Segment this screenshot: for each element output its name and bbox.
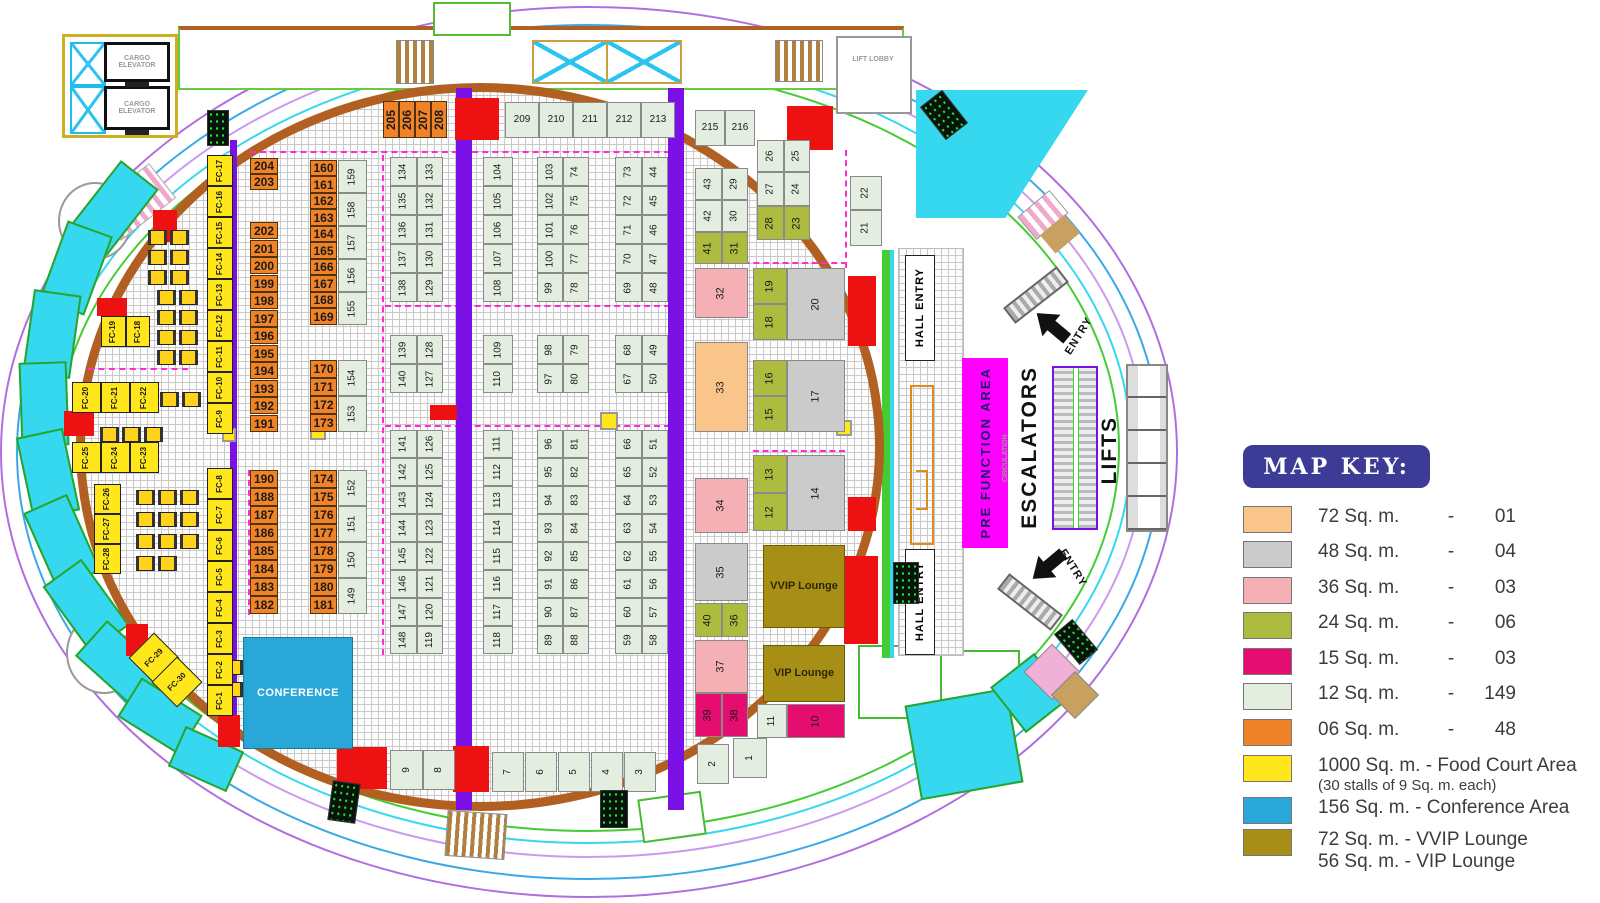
booth-153[interactable]: 153 [338,396,367,432]
booth-41[interactable]: 41 [695,232,722,264]
booth-fc-3[interactable]: FC-3 [207,623,233,654]
booth-label: FC-18 [134,320,142,342]
booth-133[interactable]: 133 [417,157,443,186]
booth-61[interactable]: 61 [615,570,642,598]
booth-166[interactable]: 166 [310,259,337,275]
cargo-elevator-2[interactable]: CARGO ELEVATOR [104,86,170,130]
booth-111[interactable]: 111 [483,430,513,458]
booth-143[interactable]: 143 [390,486,417,514]
booth-48[interactable]: 48 [642,273,668,302]
booth-fc-1[interactable]: FC-1 [207,685,233,716]
booth-23[interactable]: 23 [784,206,810,240]
booth-150[interactable]: 150 [338,542,367,578]
booth-14[interactable]: 14 [787,455,845,531]
booth-53[interactable]: 53 [642,486,668,514]
booth-fc-23[interactable]: FC-23 [130,442,159,473]
booth-85[interactable]: 85 [563,542,589,570]
legend-swatch [1243,719,1292,746]
booth-27[interactable]: 27 [757,172,784,206]
booth-164[interactable]: 164 [310,226,337,242]
booth-label: 51 [650,438,660,449]
booth-fc-27[interactable]: FC-27 [94,514,121,544]
zone-divider-line [385,425,670,427]
booth-fc-16[interactable]: FC-16 [207,186,233,217]
digital-signage [600,790,628,828]
booth-177[interactable]: 177 [310,524,337,542]
booth-1[interactable]: 1 [733,738,767,778]
booth-label: 30 [730,210,740,221]
booth-63[interactable]: 63 [615,514,642,542]
booth-label: 191 [254,418,274,430]
booth-fc-11[interactable]: FC-11 [207,341,233,372]
booth-193[interactable]: 193 [250,380,278,397]
booth-68[interactable]: 68 [615,335,642,364]
booth-131[interactable]: 131 [417,215,443,244]
booth-106[interactable]: 106 [483,215,513,244]
booth-90[interactable]: 90 [537,598,563,626]
booth-fc-15[interactable]: FC-15 [207,217,233,248]
booth-label: 71 [624,224,634,235]
booth-52[interactable]: 52 [642,458,668,486]
booth-label: 61 [624,578,634,589]
booth-124[interactable]: 124 [417,486,443,514]
booth-71[interactable]: 71 [615,215,642,244]
booth-65[interactable]: 65 [615,458,642,486]
booth-54[interactable]: 54 [642,514,668,542]
booth-fc-2[interactable]: FC-2 [207,654,233,685]
booth-208[interactable]: 208 [431,101,447,138]
booth-fc-20[interactable]: FC-20 [72,382,101,413]
booth-43[interactable]: 43 [695,168,722,200]
booth-15[interactable]: 15 [753,396,787,432]
booth-74[interactable]: 74 [563,157,589,186]
booth-142[interactable]: 142 [390,458,417,486]
booth-13[interactable]: 13 [753,455,787,493]
booth-154[interactable]: 154 [338,360,367,396]
booth-158[interactable]: 158 [338,193,367,226]
booth-58[interactable]: 58 [642,626,668,654]
booth-123[interactable]: 123 [417,514,443,542]
booth-label: 159 [348,168,358,185]
booth-213[interactable]: 213 [641,102,675,138]
booth-196[interactable]: 196 [250,327,278,344]
booth-label: 9 [402,767,412,773]
food-court-table [148,270,167,285]
booth-70[interactable]: 70 [615,244,642,273]
booth-91[interactable]: 91 [537,570,563,598]
booth-116[interactable]: 116 [483,570,513,598]
booth-label: 205 [385,109,397,129]
booth-64[interactable]: 64 [615,486,642,514]
booth-46[interactable]: 46 [642,215,668,244]
booth-180[interactable]: 180 [310,578,337,596]
booth-label: 112 [493,464,503,480]
booth-30[interactable]: 30 [722,200,748,232]
booth-134[interactable]: 134 [390,157,417,186]
booth-60[interactable]: 60 [615,598,642,626]
booth-205[interactable]: 205 [383,101,399,138]
booth-38[interactable]: 38 [722,693,748,737]
booth-label: 156 [348,267,358,284]
booth-label: 95 [545,466,555,477]
booth-label: 174 [313,473,333,485]
booth-155[interactable]: 155 [338,292,367,325]
booth-fc-6[interactable]: FC-6 [207,530,233,561]
booth-vip-lounge[interactable]: VIP Lounge [763,645,845,702]
booth-191[interactable]: 191 [250,415,278,432]
booth-87[interactable]: 87 [563,598,589,626]
booth-78[interactable]: 78 [563,273,589,302]
booth-169[interactable]: 169 [310,308,337,325]
booth-161[interactable]: 161 [310,176,337,193]
booth-118[interactable]: 118 [483,626,513,654]
booth-28[interactable]: 28 [757,206,784,240]
booth-57[interactable]: 57 [642,598,668,626]
booth-149[interactable]: 149 [338,578,367,614]
food-court-table [144,427,163,442]
booth-102[interactable]: 102 [537,186,563,215]
booth-139[interactable]: 139 [390,335,417,364]
booth-136[interactable]: 136 [390,215,417,244]
booth-82[interactable]: 82 [563,458,589,486]
booth-178[interactable]: 178 [310,542,337,560]
booth-204[interactable]: 204 [250,158,278,174]
booth-label: 12 [765,506,776,518]
booth-label: 2 [708,761,718,767]
booth-160[interactable]: 160 [310,160,337,176]
booth-152[interactable]: 152 [338,470,367,506]
booth-7[interactable]: 7 [492,752,524,792]
booth-21[interactable]: 21 [850,210,882,246]
booth-95[interactable]: 95 [537,458,563,486]
booth-200[interactable]: 200 [250,257,278,274]
food-court-table [179,330,198,345]
booth-128[interactable]: 128 [417,335,443,364]
booth-83[interactable]: 83 [563,486,589,514]
booth-100[interactable]: 100 [537,244,563,273]
booth-label: 196 [254,330,274,342]
booth-fc-5[interactable]: FC-5 [207,561,233,592]
booth-110[interactable]: 110 [483,364,513,393]
booth-fc-21[interactable]: FC-21 [101,382,130,413]
booth-192[interactable]: 192 [250,397,278,414]
booth-107[interactable]: 107 [483,244,513,273]
booth-168[interactable]: 168 [310,292,337,308]
booth-201[interactable]: 201 [250,240,278,257]
booth-label: 57 [650,606,660,617]
booth-6[interactable]: 6 [525,752,557,792]
booth-146[interactable]: 146 [390,570,417,598]
booth-171[interactable]: 171 [310,378,337,396]
booth-186[interactable]: 186 [250,524,278,542]
booth-40[interactable]: 40 [695,603,722,637]
booth-77[interactable]: 77 [563,244,589,273]
booth-115[interactable]: 115 [483,542,513,570]
booth-183[interactable]: 183 [250,578,278,596]
booth-51[interactable]: 51 [642,430,668,458]
booth-199[interactable]: 199 [250,275,278,292]
booth-fc-28[interactable]: FC-28 [94,544,121,574]
booth-84[interactable]: 84 [563,514,589,542]
booth-9[interactable]: 9 [390,750,423,790]
booth-45[interactable]: 45 [642,186,668,215]
booth-fc-13[interactable]: FC-13 [207,279,233,310]
food-court-table [136,534,155,549]
booth-173[interactable]: 173 [310,414,337,432]
booth-66[interactable]: 66 [615,430,642,458]
booth-179[interactable]: 179 [310,560,337,578]
lift-lobby-room [836,36,912,114]
booth-96[interactable]: 96 [537,430,563,458]
booth-76[interactable]: 76 [563,215,589,244]
booth-fc-8[interactable]: FC-8 [207,468,233,499]
map-key-entry: 156 Sq. m. - Conference Area [1243,797,1569,824]
booth-120[interactable]: 120 [417,598,443,626]
booth-181[interactable]: 181 [310,596,337,614]
booth-162[interactable]: 162 [310,193,337,209]
booth-148[interactable]: 148 [390,626,417,654]
booth-80[interactable]: 80 [563,364,589,393]
booth-fc-9[interactable]: FC-9 [207,403,233,434]
booth-label: 130 [425,250,435,267]
cargo-elevator-1[interactable]: CARGO ELEVATOR [104,42,170,82]
booth-36[interactable]: 36 [722,603,748,637]
legend-text: 12 Sq. m.-149 [1318,683,1516,705]
booth-62[interactable]: 62 [615,542,642,570]
booth-212[interactable]: 212 [607,102,641,138]
booth-145[interactable]: 145 [390,542,417,570]
lifts-graphic [1126,364,1168,532]
booth-fc-4[interactable]: FC-4 [207,592,233,623]
booth-126[interactable]: 126 [417,430,443,458]
booth-113[interactable]: 113 [483,486,513,514]
booth-187[interactable]: 187 [250,506,278,524]
booth-216[interactable]: 216 [725,110,755,146]
booth-119[interactable]: 119 [417,626,443,654]
booth-104[interactable]: 104 [483,157,513,186]
booth-25[interactable]: 25 [784,140,810,172]
booth-88[interactable]: 88 [563,626,589,654]
booth-174[interactable]: 174 [310,470,337,488]
booth-50[interactable]: 50 [642,364,668,393]
booth-132[interactable]: 132 [417,186,443,215]
booth-2[interactable]: 2 [697,744,729,784]
booth-67[interactable]: 67 [615,364,642,393]
booth-135[interactable]: 135 [390,186,417,215]
booth-92[interactable]: 92 [537,542,563,570]
booth-93[interactable]: 93 [537,514,563,542]
booth-114[interactable]: 114 [483,514,513,542]
booth-33[interactable]: 33 [695,342,748,432]
booth-147[interactable]: 147 [390,598,417,626]
booth-72[interactable]: 72 [615,186,642,215]
booth-26[interactable]: 26 [757,140,784,172]
booth-56[interactable]: 56 [642,570,668,598]
booth-16[interactable]: 16 [753,360,787,396]
booth-fc-18[interactable]: FC-18 [126,316,150,347]
booth-label: 42 [704,210,714,221]
booth-215[interactable]: 215 [695,110,725,146]
booth-29[interactable]: 29 [722,168,748,200]
booth-fc-24[interactable]: FC-24 [101,442,130,473]
booth-198[interactable]: 198 [250,292,278,309]
booth-159[interactable]: 159 [338,160,367,193]
booth-182[interactable]: 182 [250,596,278,614]
booth-5[interactable]: 5 [558,752,590,792]
booth-194[interactable]: 194 [250,362,278,379]
booth-label: FC-9 [216,410,224,428]
booth-86[interactable]: 86 [563,570,589,598]
booth-79[interactable]: 79 [563,335,589,364]
booth-59[interactable]: 59 [615,626,642,654]
booth-99[interactable]: 99 [537,273,563,302]
booth-170[interactable]: 170 [310,360,337,378]
service-block [453,746,489,792]
booth-fc-25[interactable]: FC-25 [72,442,101,473]
booth-20[interactable]: 20 [787,268,845,340]
booth-108[interactable]: 108 [483,273,513,302]
hall-entry-top[interactable]: HALL ENTRY [905,255,935,361]
booth-24[interactable]: 24 [784,172,810,206]
booth-140[interactable]: 140 [390,364,417,393]
booth-label: FC-13 [216,283,224,305]
booth-42[interactable]: 42 [695,200,722,232]
booth-3[interactable]: 3 [624,752,656,792]
booth-206[interactable]: 206 [399,101,415,138]
booth-11[interactable]: 11 [757,704,787,738]
booth-label: 33 [716,381,727,393]
service-block [844,556,878,644]
booth-121[interactable]: 121 [417,570,443,598]
booth-89[interactable]: 89 [537,626,563,654]
booth-34[interactable]: 34 [695,478,748,533]
booth-49[interactable]: 49 [642,335,668,364]
booth-label: 94 [545,494,555,505]
booth-130[interactable]: 130 [417,244,443,273]
booth-112[interactable]: 112 [483,458,513,486]
booth-105[interactable]: 105 [483,186,513,215]
booth-69[interactable]: 69 [615,273,642,302]
booth-47[interactable]: 47 [642,244,668,273]
booth-122[interactable]: 122 [417,542,443,570]
booth-185[interactable]: 185 [250,542,278,560]
legend-text: 36 Sq. m.-03 [1318,577,1516,599]
booth-label: 21 [861,222,871,233]
booth-44[interactable]: 44 [642,157,668,186]
booth-195[interactable]: 195 [250,345,278,362]
booth-211[interactable]: 211 [573,102,607,138]
booth-203[interactable]: 203 [250,174,278,190]
food-court-table [179,350,198,365]
booth-31[interactable]: 31 [722,232,748,264]
booth-label: 192 [254,400,274,412]
booth-144[interactable]: 144 [390,514,417,542]
booth-97[interactable]: 97 [537,364,563,393]
booth-101[interactable]: 101 [537,215,563,244]
booth-137[interactable]: 137 [390,244,417,273]
booth-18[interactable]: 18 [753,304,787,340]
booth-151[interactable]: 151 [338,506,367,542]
booth-fc-17[interactable]: FC-17 [207,155,233,186]
booth-163[interactable]: 163 [310,209,337,226]
legend-text: 15 Sq. m.-03 [1318,648,1516,670]
escalator-graphic [1052,366,1098,530]
booth-fc-10[interactable]: FC-10 [207,372,233,403]
booth-172[interactable]: 172 [310,396,337,414]
booth-fc-26[interactable]: FC-26 [94,484,121,514]
booth-103[interactable]: 103 [537,157,563,186]
booth-209[interactable]: 209 [505,102,539,138]
booth-8[interactable]: 8 [423,750,455,790]
booth-157[interactable]: 157 [338,226,367,259]
booth-12[interactable]: 12 [753,493,787,531]
booth-vvip-lounge[interactable]: VVIP Lounge [763,545,845,628]
booth-210[interactable]: 210 [539,102,573,138]
booth-label: 105 [493,192,503,209]
booth-125[interactable]: 125 [417,458,443,486]
booth-label: FC-12 [216,314,224,336]
booth-10[interactable]: 10 [787,704,845,738]
booth-fc-19[interactable]: FC-19 [101,316,126,347]
booth-17[interactable]: 17 [787,360,845,432]
booth-4[interactable]: 4 [591,752,623,792]
booth-127[interactable]: 127 [417,364,443,393]
booth-22[interactable]: 22 [850,176,882,210]
booth-39[interactable]: 39 [695,693,722,737]
booth-19[interactable]: 19 [753,268,787,304]
booth-176[interactable]: 176 [310,506,337,524]
booth-156[interactable]: 156 [338,259,367,292]
booth-207[interactable]: 207 [415,101,431,138]
booth-75[interactable]: 75 [563,186,589,215]
booth-55[interactable]: 55 [642,542,668,570]
booth-117[interactable]: 117 [483,598,513,626]
booth-fc-14[interactable]: FC-14 [207,248,233,279]
booth-label: 187 [254,509,274,521]
booth-37[interactable]: 37 [695,640,748,693]
booth-fc-12[interactable]: FC-12 [207,310,233,341]
booth-138[interactable]: 138 [390,273,417,302]
booth-190[interactable]: 190 [250,470,278,488]
lift-lobby-label: LIFT LOBBY [848,56,898,63]
booth-32[interactable]: 32 [695,268,748,318]
booth-188[interactable]: 188 [250,488,278,506]
booth-label: VIP Lounge [764,668,844,679]
booth-202[interactable]: 202 [250,222,278,239]
booth-184[interactable]: 184 [250,560,278,578]
booth-label: 43 [704,178,714,189]
legend-swatch [1243,506,1292,533]
booth-167[interactable]: 167 [310,275,337,292]
booth-35[interactable]: 35 [695,543,748,601]
booth-73[interactable]: 73 [615,157,642,186]
food-court-table [180,534,199,549]
booth-98[interactable]: 98 [537,335,563,364]
booth-197[interactable]: 197 [250,310,278,327]
booth-conference[interactable]: CONFERENCE [243,637,353,749]
booth-109[interactable]: 109 [483,335,513,364]
booth-81[interactable]: 81 [563,430,589,458]
booth-fc-7[interactable]: FC-7 [207,499,233,530]
booth-label: 186 [254,527,274,539]
booth-94[interactable]: 94 [537,486,563,514]
booth-label: 215 [702,123,719,133]
booth-141[interactable]: 141 [390,430,417,458]
booth-175[interactable]: 175 [310,488,337,506]
booth-165[interactable]: 165 [310,242,337,259]
booth-fc-22[interactable]: FC-22 [130,382,159,413]
booth-129[interactable]: 129 [417,273,443,302]
